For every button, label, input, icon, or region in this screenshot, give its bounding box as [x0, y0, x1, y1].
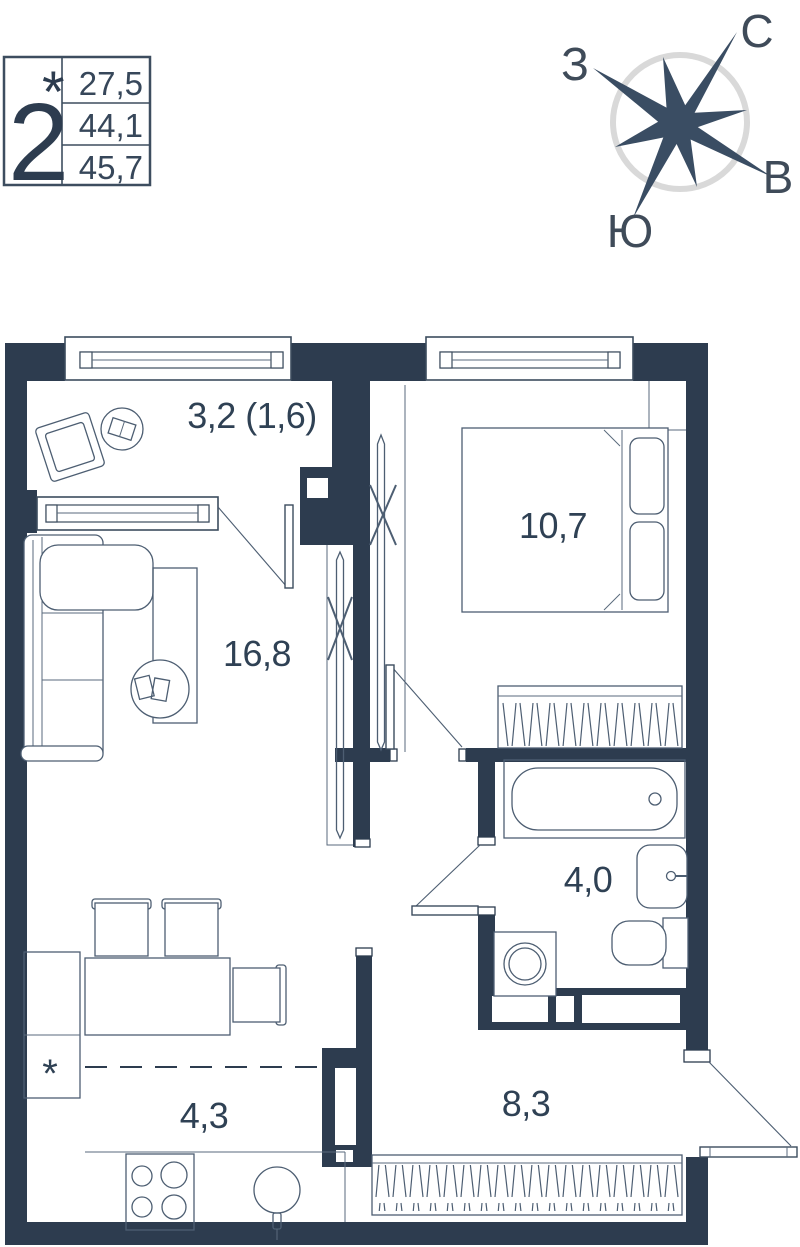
bedroom-door-frame-right	[459, 749, 466, 761]
coffee-table	[131, 660, 189, 718]
bath-wall-niche-2	[556, 996, 574, 1022]
wall-bottom	[5, 1222, 708, 1245]
wall-top-left	[5, 343, 65, 381]
living-room-furniture	[21, 535, 353, 845]
bath-wall-niche-1	[492, 996, 548, 1022]
sofa-chaise	[40, 545, 153, 610]
chair	[233, 968, 280, 1022]
floor-plan-canvas: 2 * 27,5 44,1 45,7 С З В Ю	[0, 0, 800, 1247]
washing-machine	[494, 932, 556, 996]
living-room-area-label: 16,8	[223, 633, 291, 674]
wall-niche	[307, 478, 328, 498]
area-value-1: 27,5	[79, 65, 143, 102]
kitchen-area-label: 4,3	[180, 1095, 229, 1136]
sofa-armrest	[21, 746, 103, 761]
compass-east-label: В	[763, 151, 794, 203]
area-value-2: 44,1	[79, 107, 143, 144]
chair	[95, 903, 148, 956]
compass-west-label: З	[561, 38, 589, 90]
shaft-left	[322, 1068, 335, 1145]
balcony-area-label: 3,2 (1,6)	[187, 395, 317, 436]
wall-right-upper	[686, 343, 708, 1062]
info-box: 2 * 27,5 44,1 45,7	[4, 57, 150, 204]
wall-left	[5, 343, 27, 1245]
compass-rose: С З В Ю	[561, 5, 793, 257]
bedroom-door-frame-left	[390, 749, 397, 761]
floor-plan-page: 2 * 27,5 44,1 45,7 С З В Ю	[0, 0, 800, 1247]
wall-top-middle	[291, 343, 426, 381]
entrance-door	[700, 1062, 797, 1157]
entrance-threshold	[684, 1050, 710, 1062]
bathtub	[504, 760, 685, 838]
wall-bath-left-lower	[478, 915, 495, 990]
bathroom-sink	[637, 845, 687, 908]
room-count-asterisk: *	[42, 60, 65, 125]
bedroom-window	[426, 337, 633, 380]
balcony-window	[65, 337, 291, 380]
hall-opening-frame-bottom	[356, 948, 372, 956]
hall-opening-frame-top	[355, 839, 370, 847]
wall-balcony-pier	[5, 490, 37, 533]
kitchen-furniture: *	[24, 899, 345, 1240]
wall-divider-mid	[353, 545, 370, 847]
dining-set	[85, 899, 286, 1035]
bath-door-frame-bottom	[478, 907, 495, 915]
shaft-top	[322, 1048, 372, 1068]
balcony-door	[218, 505, 293, 588]
area-value-3: 45,7	[79, 149, 143, 186]
hallway-wardrobe	[372, 1155, 682, 1215]
wall-divider-upper	[332, 381, 370, 545]
bedroom-area-label: 10,7	[519, 505, 587, 546]
balcony-chair	[35, 412, 106, 483]
stove	[126, 1154, 194, 1230]
hallway-area-label: 8,3	[502, 1083, 551, 1124]
bath-door-frame-top	[478, 837, 495, 845]
bathroom-door	[412, 845, 480, 915]
kitchen-asterisk-marker: *	[42, 1052, 58, 1096]
balcony-furniture	[35, 408, 143, 482]
bedroom-door	[386, 665, 462, 749]
living-wardrobe	[327, 545, 353, 845]
bedroom-closet	[498, 686, 682, 748]
chair	[165, 903, 218, 956]
wall-right-lower	[686, 1157, 708, 1245]
balcony-living-window	[37, 497, 218, 530]
bath-wall-niche-3	[582, 995, 680, 1023]
dining-table	[85, 958, 230, 1035]
wall-bath-left-upper	[478, 762, 495, 837]
toilet	[612, 918, 688, 968]
compass-south-label: Ю	[607, 205, 653, 257]
bedroom-niche	[649, 381, 686, 430]
compass-north-label: С	[740, 5, 773, 57]
bathroom-area-label: 4,0	[564, 859, 613, 900]
